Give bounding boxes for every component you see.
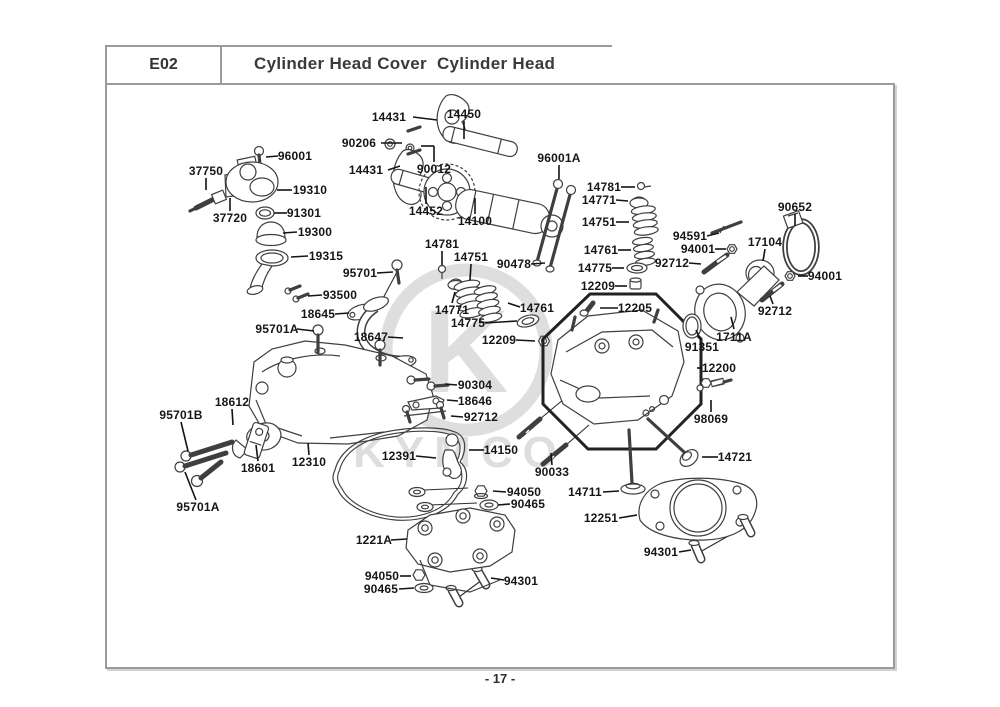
- cover-19315-drawing: [246, 250, 288, 296]
- nut-94001-right-drawing: [785, 272, 795, 281]
- part-label: 19315: [309, 249, 343, 263]
- part-label: 14781: [587, 180, 621, 194]
- part-label: 14452: [409, 204, 443, 218]
- part-label: 14775: [451, 316, 485, 330]
- part-label: 95701A: [176, 500, 219, 514]
- part-label: 96001: [278, 149, 312, 163]
- part-label: 37720: [213, 211, 247, 225]
- part-label: 14100: [458, 214, 492, 228]
- oring-91301-drawing: [256, 207, 274, 219]
- nut-washer-94050-90465-lower-drawing: [413, 570, 433, 593]
- part-label: 14431: [372, 110, 406, 124]
- stud-92712-mid-drawing: [704, 255, 727, 272]
- part-label: 94001: [681, 242, 715, 256]
- nut-washer-94050-90465-upper-drawing: [409, 486, 498, 512]
- part-label: 18612: [215, 395, 249, 409]
- part-label: 93500: [323, 288, 357, 302]
- part-label: 17104: [748, 235, 782, 249]
- part-label: 14775: [578, 261, 612, 275]
- valve-parts-right-drawing: [627, 183, 659, 290]
- sensor-37750-drawing: [190, 190, 226, 211]
- part-label: 92712: [758, 304, 792, 318]
- part-label: 12251: [584, 511, 618, 525]
- part-label: 96001A: [537, 151, 580, 165]
- part-label: 92712: [655, 256, 689, 270]
- part-label: 18645: [301, 307, 335, 321]
- part-label: 14450: [447, 107, 481, 121]
- part-label: 14150: [484, 443, 518, 457]
- part-label: 19310: [293, 183, 327, 197]
- part-label: 90652: [778, 200, 812, 214]
- part-label: 14771: [435, 303, 469, 317]
- nut-94001-left-drawing: [727, 245, 737, 254]
- part-label: 91351: [685, 340, 719, 354]
- part-label: 12209: [482, 333, 516, 347]
- clamp-93500-drawing: [285, 286, 308, 302]
- part-label: 37750: [189, 164, 223, 178]
- head-gasket-12251-drawing: [639, 478, 757, 540]
- housing-19310-drawing: [226, 156, 278, 202]
- cylinder-head-12200-drawing: [543, 294, 701, 449]
- part-label: 95701A: [255, 322, 298, 336]
- part-label: 14761: [520, 301, 554, 315]
- part-label: 12391: [382, 449, 416, 463]
- rocker-shaft-drawing-1: [441, 125, 518, 158]
- part-label: 14751: [582, 215, 616, 229]
- part-label: 14781: [425, 237, 459, 251]
- part-label: 14751: [454, 250, 488, 264]
- part-label: 14761: [584, 243, 618, 257]
- part-label: 18601: [241, 461, 275, 475]
- part-label: 18646: [458, 394, 492, 408]
- part-label: 90012: [417, 162, 451, 176]
- valve-14711-drawing: [621, 430, 645, 494]
- part-label: 12205: [618, 301, 652, 315]
- bolts-95701B-drawing: [175, 442, 232, 487]
- part-label: 94001: [808, 269, 842, 283]
- part-label: 90478: [497, 257, 531, 271]
- stud-94591-drawing: [712, 222, 741, 233]
- part-label: 94301: [644, 545, 678, 559]
- part-label: 90465: [364, 582, 398, 596]
- part-label: 14721: [718, 450, 752, 464]
- part-label: 94301: [504, 574, 538, 588]
- part-label: 19300: [298, 225, 332, 239]
- part-label: 12209: [581, 279, 615, 293]
- page-number: - 17 -: [0, 671, 1000, 686]
- part-label: 90206: [342, 136, 376, 150]
- spark-plug-98069-drawing: [697, 379, 731, 391]
- thermostat-19300-drawing: [256, 222, 286, 246]
- part-label: 90033: [535, 465, 569, 479]
- part-label: 14431: [349, 163, 383, 177]
- part-label: 12200: [702, 361, 736, 375]
- part-label: 12310: [292, 455, 326, 469]
- valve-14721-drawing: [643, 407, 701, 470]
- part-label: 94591: [673, 229, 707, 243]
- part-label: 92712: [464, 410, 498, 424]
- part-label: 1711A: [716, 330, 752, 344]
- part-label: 98069: [694, 412, 728, 426]
- part-label: 95701B: [159, 408, 202, 422]
- parts-diagram: K KYMCO: [0, 0, 1000, 707]
- part-label: 1221A: [356, 533, 392, 547]
- part-label: 90465: [511, 497, 545, 511]
- part-label: 14711: [568, 485, 602, 499]
- part-label: 94050: [365, 569, 399, 583]
- part-label: 18647: [354, 330, 388, 344]
- part-label: 14771: [582, 193, 616, 207]
- part-label: 91301: [287, 206, 321, 220]
- catalog-page: E02 Cylinder Head Cover Cylinder Head K …: [0, 0, 1000, 707]
- clamp-90652-drawing: [783, 211, 817, 273]
- part-label: 90304: [458, 378, 492, 392]
- part-label: 95701: [343, 266, 377, 280]
